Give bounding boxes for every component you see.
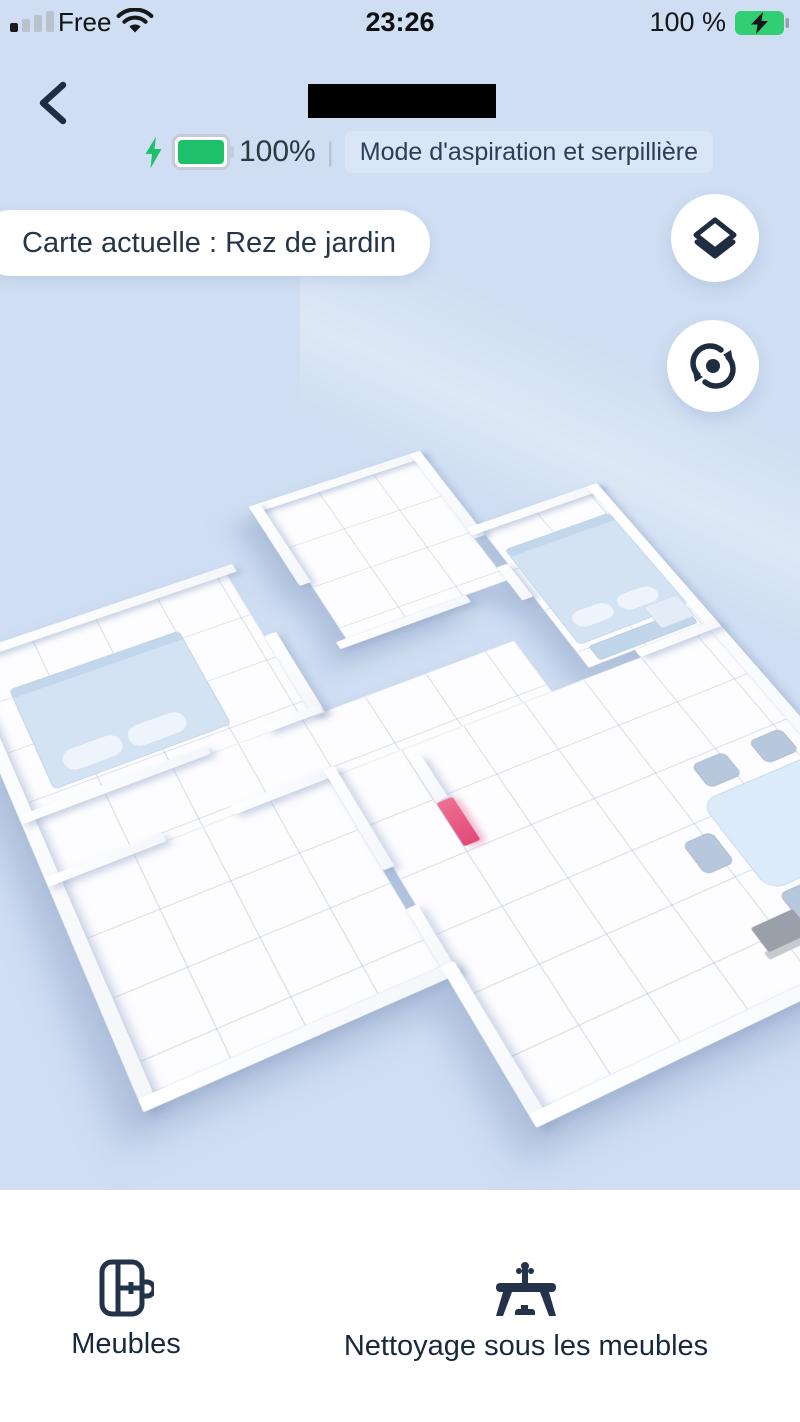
- map-layers-button[interactable]: [671, 194, 759, 282]
- divider: |: [327, 137, 334, 168]
- device-battery-percent: 100%: [239, 135, 316, 169]
- table-clean-icon: [493, 1258, 559, 1320]
- device-name-redacted: [308, 84, 496, 118]
- status-battery-percent: 100 %: [649, 7, 726, 38]
- furniture-button[interactable]: Meubles: [38, 1190, 214, 1362]
- back-chevron-icon: [34, 80, 74, 126]
- layers-icon: [691, 214, 739, 262]
- furniture-icon: [98, 1258, 154, 1318]
- bottom-action-bar: Meubles Nettoyage sous les meubles: [0, 1190, 800, 1422]
- status-bar: Free 23:26 100 %: [0, 0, 800, 44]
- bed-pillow: [566, 599, 619, 630]
- clean-under-furniture-button[interactable]: Nettoyage sous les meubles: [300, 1190, 752, 1364]
- charging-bolt-icon: [144, 136, 163, 169]
- furniture-label: Meubles: [71, 1328, 181, 1361]
- device-status-row: 100% | Mode d'aspiration et serpillière: [144, 130, 713, 174]
- rotate-icon: [688, 341, 738, 391]
- device-battery-icon: [172, 134, 230, 170]
- app-screen: Free 23:26 100 % 100% | M: [0, 0, 800, 1422]
- clean-under-furniture-label: Nettoyage sous les meubles: [344, 1330, 708, 1363]
- current-map-pill[interactable]: Carte actuelle : Rez de jardin: [0, 210, 430, 276]
- cleaning-mode-badge[interactable]: Mode d'aspiration et serpillière: [345, 131, 713, 173]
- room-kitchen-floor: [262, 461, 506, 639]
- back-button[interactable]: [28, 78, 80, 130]
- map-rotate-button[interactable]: [667, 320, 759, 412]
- status-battery-icon: [734, 10, 790, 36]
